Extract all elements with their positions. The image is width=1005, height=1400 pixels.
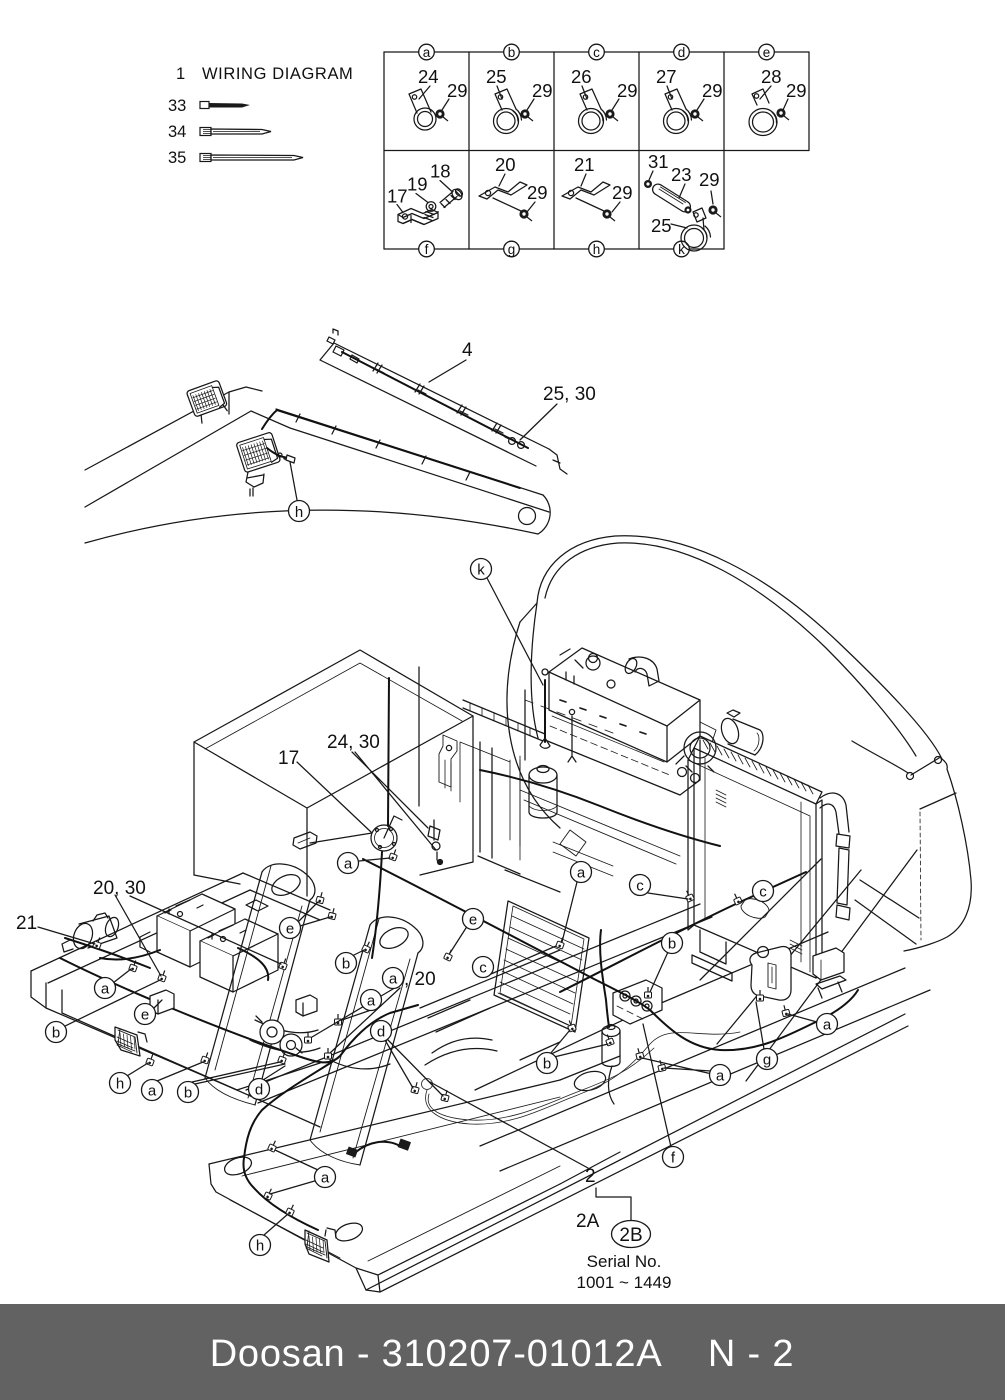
svg-text:26: 26 xyxy=(571,66,592,87)
svg-text:WIRING DIAGRAM: WIRING DIAGRAM xyxy=(202,65,353,83)
svg-text:35: 35 xyxy=(168,149,186,167)
svg-text:17: 17 xyxy=(278,748,299,769)
svg-text:a: a xyxy=(577,865,586,882)
svg-text:a: a xyxy=(367,993,376,1010)
svg-text:a: a xyxy=(823,1017,832,1034)
svg-text:25: 25 xyxy=(486,66,507,87)
svg-text:e: e xyxy=(286,921,294,938)
svg-text:2: 2 xyxy=(585,1166,596,1187)
svg-text:b: b xyxy=(52,1025,60,1042)
svg-text:f: f xyxy=(425,242,429,257)
svg-text:Doosan - 310207-01012A N -: Doosan - 310207-01012A N - 2 xyxy=(210,1333,795,1375)
svg-text:29: 29 xyxy=(786,80,807,101)
svg-text:k: k xyxy=(477,562,485,579)
svg-text:b: b xyxy=(543,1056,551,1073)
svg-text:18: 18 xyxy=(430,161,451,182)
svg-text:24: 24 xyxy=(418,66,439,87)
svg-text:29: 29 xyxy=(447,80,468,101)
svg-text:24, 30: 24, 30 xyxy=(327,732,380,753)
svg-text:k: k xyxy=(678,242,685,257)
svg-text:31: 31 xyxy=(648,151,669,172)
svg-text:e: e xyxy=(469,912,477,929)
svg-text:21: 21 xyxy=(16,913,37,934)
svg-text:b: b xyxy=(668,936,676,953)
svg-text:c: c xyxy=(593,45,600,60)
svg-text:c: c xyxy=(636,878,644,895)
svg-text:h: h xyxy=(256,1238,264,1255)
svg-text:1001 ~ 1449: 1001 ~ 1449 xyxy=(576,1273,671,1292)
svg-text:28: 28 xyxy=(761,66,782,87)
svg-text:e: e xyxy=(141,1007,149,1024)
svg-text:23: 23 xyxy=(671,164,692,185)
svg-text:29: 29 xyxy=(617,80,638,101)
svg-text:4: 4 xyxy=(462,340,473,361)
svg-text:2B: 2B xyxy=(619,1225,642,1246)
svg-text:d: d xyxy=(377,1024,385,1041)
svg-text:a: a xyxy=(101,981,110,998)
svg-text:29: 29 xyxy=(699,169,720,190)
svg-text:29: 29 xyxy=(612,182,633,203)
svg-text:27: 27 xyxy=(656,66,677,87)
svg-text:e: e xyxy=(763,45,771,60)
svg-text:33: 33 xyxy=(168,97,186,115)
svg-text:2A: 2A xyxy=(576,1211,600,1232)
svg-text:b: b xyxy=(184,1085,192,1102)
svg-text:h: h xyxy=(593,242,601,257)
svg-text:a: a xyxy=(716,1068,725,1085)
svg-text:17: 17 xyxy=(387,186,408,207)
svg-text:Serial No.: Serial No. xyxy=(587,1252,662,1271)
svg-text:b: b xyxy=(508,45,516,60)
svg-text:d: d xyxy=(678,45,686,60)
svg-text:, 20: , 20 xyxy=(404,969,436,990)
svg-text:34: 34 xyxy=(168,123,186,141)
svg-text:29: 29 xyxy=(532,80,553,101)
svg-text:25, 30: 25, 30 xyxy=(543,384,596,405)
svg-text:21: 21 xyxy=(574,154,595,175)
svg-text:d: d xyxy=(255,1082,263,1099)
svg-text:h: h xyxy=(116,1076,124,1093)
svg-text:20: 20 xyxy=(495,154,516,175)
svg-text:g: g xyxy=(508,242,516,257)
svg-text:a: a xyxy=(389,971,398,988)
svg-text:25: 25 xyxy=(651,215,672,236)
svg-text:29: 29 xyxy=(527,182,548,203)
svg-text:c: c xyxy=(479,960,487,977)
svg-text:29: 29 xyxy=(702,80,723,101)
svg-text:c: c xyxy=(759,884,767,901)
svg-text:g: g xyxy=(763,1052,771,1069)
svg-text:a: a xyxy=(423,45,431,60)
svg-text:1: 1 xyxy=(176,65,185,83)
svg-text:a: a xyxy=(321,1170,330,1187)
svg-text:20, 30: 20, 30 xyxy=(93,878,146,899)
svg-text:a: a xyxy=(344,856,353,873)
svg-text:h: h xyxy=(295,504,303,521)
svg-text:b: b xyxy=(342,956,350,973)
svg-text:a: a xyxy=(148,1083,157,1100)
svg-text:19: 19 xyxy=(407,174,428,195)
